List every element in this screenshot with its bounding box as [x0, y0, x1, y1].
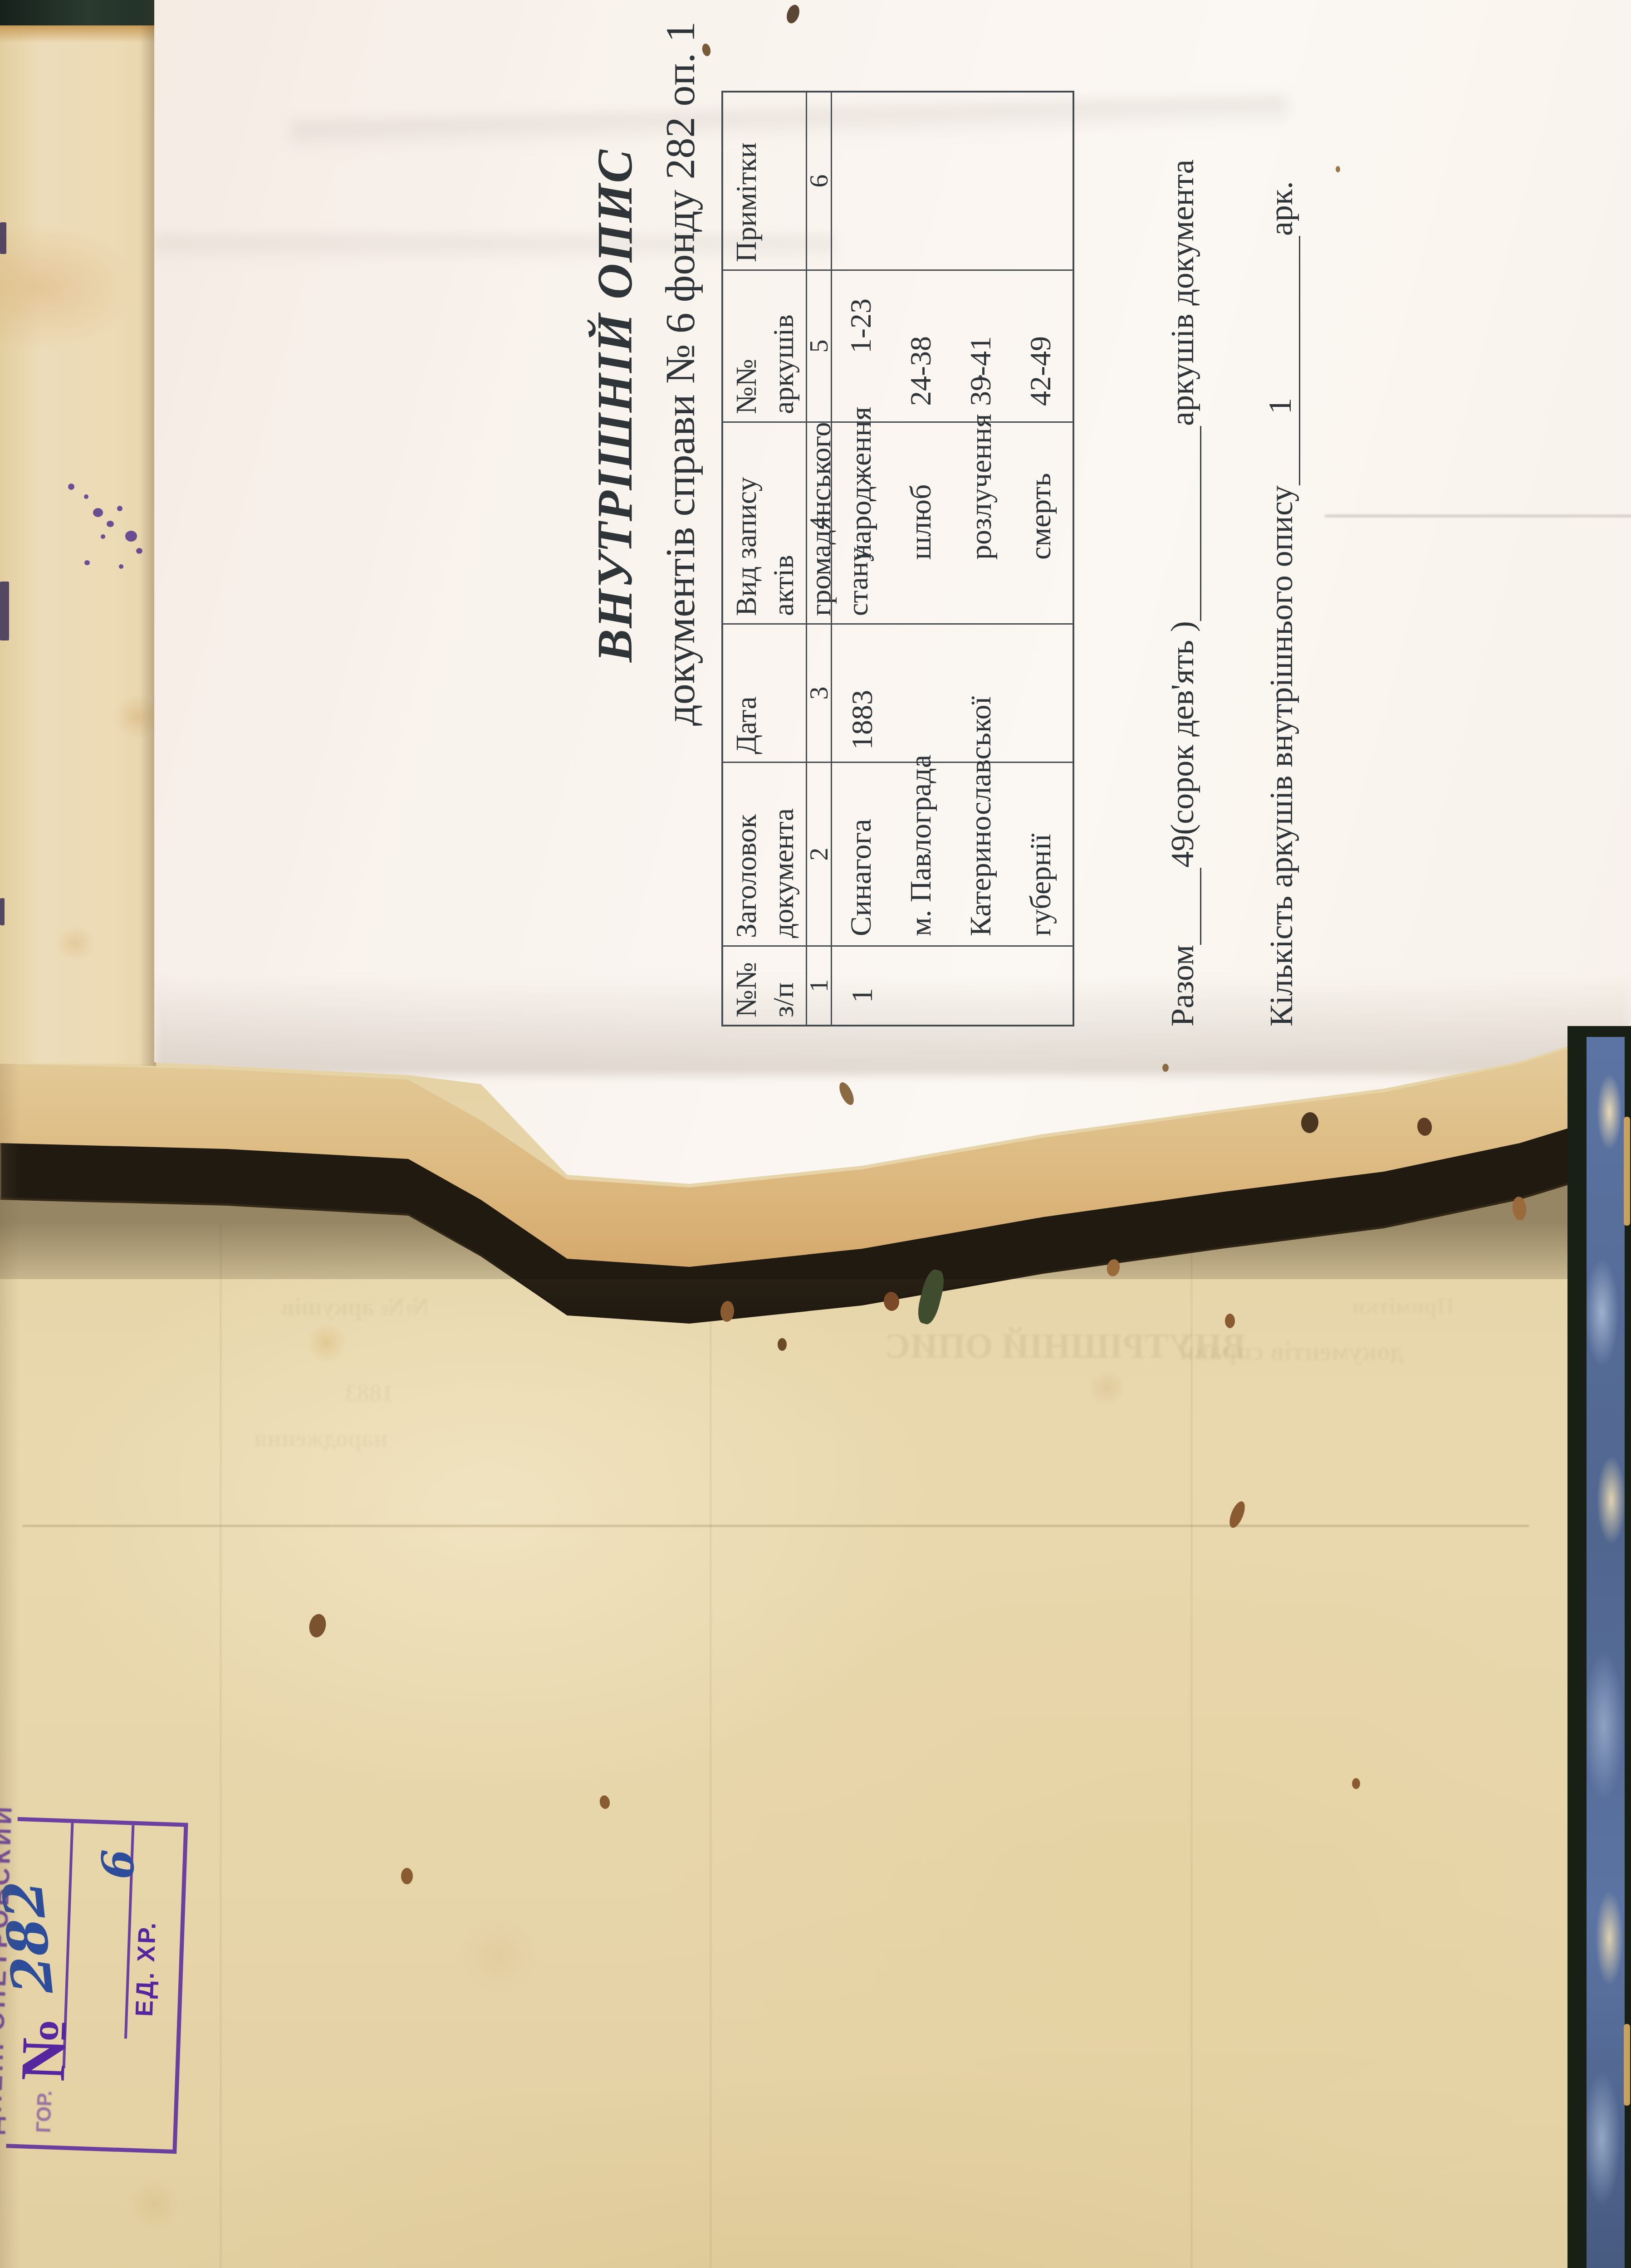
record-type: розлучення· [965, 423, 1024, 623]
ink-spatter [117, 506, 122, 511]
title-line: м. Павлограда [905, 763, 965, 945]
paper-stain [127, 2177, 181, 2232]
paper-crease [220, 1225, 221, 2268]
column-number: 5 [807, 269, 832, 421]
stamp-unit-label: ЕД. ХР. [130, 1920, 161, 2017]
ink-smear [0, 898, 5, 925]
ink-spatter [107, 521, 114, 527]
ink-spatter [84, 560, 90, 565]
footer-total-line: Разом49(сорок дев'ять )аркушів документа [1164, 160, 1201, 1026]
debris-speck [401, 1868, 413, 1884]
total-label: Разом [1164, 945, 1201, 1026]
ink-spatter [101, 534, 105, 539]
col-header-sheets: №№ аркушів [723, 269, 807, 421]
cell-date: 1883 [832, 623, 1073, 762]
ghost-rule [23, 1525, 1529, 1527]
ink-smear [0, 222, 6, 254]
ink-spatter [119, 564, 123, 569]
debris-speck [1336, 166, 1340, 172]
total-suffix: аркушів документа [1164, 160, 1201, 426]
col-header-notes: Примітки [723, 93, 807, 269]
column-number: 1 [807, 945, 832, 1025]
paper-crease [710, 1225, 711, 2268]
document-subtitle: документів справи № 6 фонду 282 оп. 1 [656, 64, 704, 726]
col-header-title: Заголовок документа [723, 762, 807, 945]
debris-speck [1162, 1064, 1169, 1072]
cover-blue-cloth [1587, 1037, 1625, 2268]
flyleaf-page [0, 0, 160, 1064]
cover-edge-top [0, 0, 160, 26]
debris-speck [1352, 1778, 1360, 1789]
debris-speck [778, 1338, 787, 1351]
cell-record-types: народження шлюб розлучення· смерть [832, 421, 1073, 623]
ghost-text: Примітки [1352, 1293, 1455, 1319]
book-cover-right-edge [1567, 1026, 1631, 2268]
record-type: народження [845, 423, 905, 623]
handwritten-unit-number: 6 [92, 1852, 144, 1884]
archive-stamp: ДНЕПРОПЕТРОВСКИЙ ГОР. № 282 ЕД. ХР. 6 [6, 1817, 188, 2154]
sheet-range: 1-23 [845, 271, 905, 421]
document-title: ВНУТРІШНІЙ ОПИС [586, 272, 644, 662]
ink-spatter [93, 508, 103, 517]
ghost-text: 1883 [345, 1379, 394, 1407]
ghost-text: документів справи [1180, 1336, 1403, 1366]
fill-line [1264, 236, 1300, 386]
archive-stamp-content: ДНЕПРОПЕТРОВСКИЙ ГОР. № 282 ЕД. ХР. 6 [6, 1817, 188, 2154]
cell-sheet-numbers: 1-23 24-38 39-41 42-49 [832, 269, 1073, 421]
fill-line [1166, 868, 1201, 945]
stamp-gor-text: ГОР. [32, 2090, 56, 2133]
count-suffix: арк. [1263, 181, 1300, 236]
column-number: 3 [807, 623, 832, 762]
title-line: Катеринославської [965, 763, 1024, 945]
column-number: 6 [807, 93, 832, 269]
record-type: шлюб [905, 423, 965, 623]
ink-smear [0, 582, 9, 640]
paper-crease [1191, 1225, 1192, 2268]
title-line: губернії [1024, 763, 1084, 945]
page-edge-top [0, 25, 160, 43]
inventory-sheet: ВНУТРІШНІЙ ОПИС документів справи № 6 фо… [154, 0, 1631, 1207]
inventory-document: ВНУТРІШНІЙ ОПИС документів справи № 6 фо… [154, 0, 1631, 1207]
cell-row-number: 1 [832, 945, 1073, 1025]
title-line: Синагога [845, 763, 905, 945]
page-edge-sliver [1624, 2024, 1630, 2106]
column-number: 4 [807, 421, 832, 623]
page-edge-sliver [1624, 1117, 1630, 1226]
sheet-shadow [140, 0, 156, 1066]
paper-stain [1089, 1370, 1125, 1406]
cell-document-title: Синагога м. Павлограда Катеринославської… [832, 762, 1073, 945]
total-value: 49(сорок дев'ять ) [1164, 621, 1201, 868]
ink-spatter [68, 484, 74, 490]
col-header-date: Дата [723, 623, 807, 762]
left-edge-shade [0, 1064, 20, 2268]
paper-stain [54, 925, 95, 962]
paper-stain [306, 1322, 347, 1363]
col-header-record-type: Вид запису актів громадянського стану [723, 421, 807, 623]
scanned-book-page: ВНУТРІШНІЙ ОПИС документів справи №№ арк… [0, 0, 1631, 2268]
footer-count-line: Кількість аркушів внутрішнього опису1арк… [1261, 181, 1300, 1026]
sheet-range: 24-38 [905, 271, 965, 421]
fill-line [1264, 426, 1300, 485]
ink-spatter [84, 494, 88, 499]
col-header-number: №№ з/п [723, 945, 807, 1025]
sheet-range: 39-41 [965, 271, 1024, 421]
ink-spatter [125, 531, 137, 542]
inventory-table: №№ з/п Заголовок документа Дата Вид запи… [721, 91, 1074, 1026]
ghost-text: народження [254, 1424, 388, 1452]
fill-line [1166, 426, 1201, 621]
stray-dot: · [965, 371, 996, 382]
ghost-text: №№ аркушів [281, 1293, 429, 1321]
record-type: смерть [1024, 423, 1084, 623]
count-label: Кількість аркушів внутрішнього опису [1263, 485, 1300, 1026]
paper-stain [458, 1914, 540, 1996]
column-number: 2 [807, 762, 832, 945]
debris-speck [1225, 1314, 1235, 1328]
cell-notes [832, 93, 1073, 269]
sheet-range: 42-49 [1024, 271, 1084, 421]
count-value: 1 [1261, 386, 1300, 426]
